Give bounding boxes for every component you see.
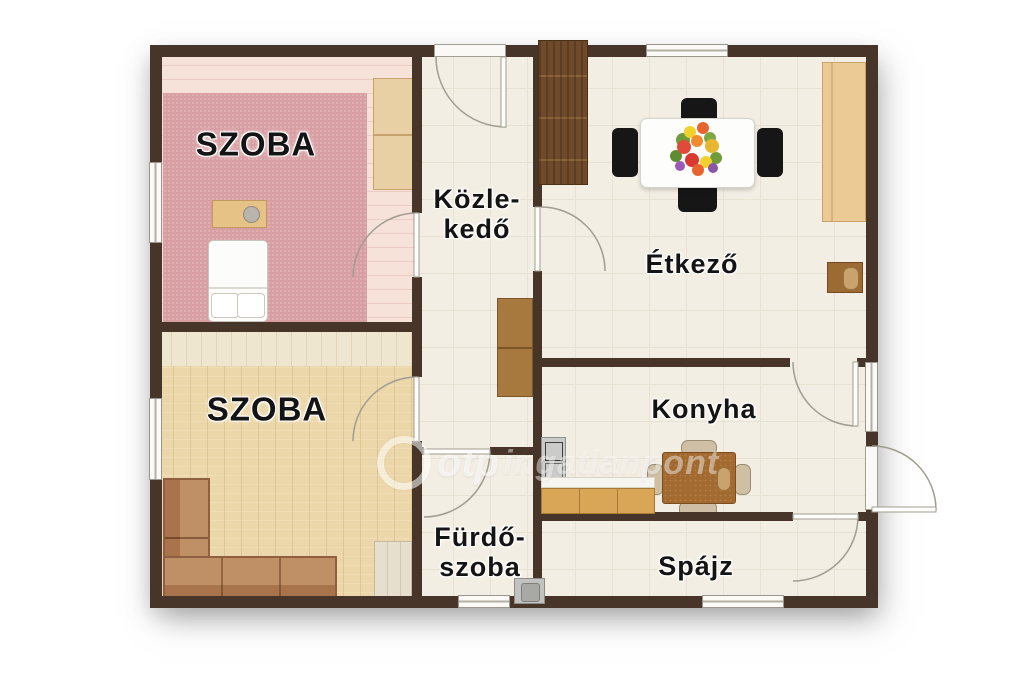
wall-segment <box>866 510 878 608</box>
side-cabinet <box>827 262 863 293</box>
low-wardrobe <box>374 541 412 597</box>
floor-plan: SZOBA SZOBA Közle- kedő Étkező Konyha Fü… <box>0 0 1024 682</box>
tall-cabinet <box>822 62 866 222</box>
wall-segment <box>858 512 866 521</box>
room-label-line: Fürdő- <box>434 522 525 552</box>
window <box>458 595 510 608</box>
wall-segment <box>150 480 162 608</box>
room-label-szoba-top: SZOBA <box>196 127 317 164</box>
window <box>702 595 784 608</box>
wood-floor-strip <box>156 332 418 366</box>
wardrobe <box>373 78 413 190</box>
hall-cabinet <box>497 298 533 397</box>
wall-segment <box>150 322 422 332</box>
room-label-konyha: Konyha <box>651 394 756 424</box>
wall-segment <box>866 432 878 446</box>
wall-segment <box>542 358 790 367</box>
entrance-wardrobe <box>538 40 588 185</box>
otp-logo-icon <box>377 436 431 490</box>
window <box>865 362 878 432</box>
pillow <box>237 293 265 318</box>
window <box>149 162 162 243</box>
wall-segment <box>150 45 434 57</box>
basket <box>843 267 859 290</box>
room-label-line: Közle- <box>434 184 521 214</box>
room-label-etkezo: Étkező <box>645 249 738 279</box>
wall-segment <box>150 45 162 162</box>
kitchen-cabinets <box>541 488 655 514</box>
wall-segment <box>784 596 878 608</box>
watermark-brand: otp <box>437 441 499 486</box>
dining-table <box>640 118 755 188</box>
sink-basin <box>521 583 540 602</box>
watermark: otp ingatlanpont <box>377 436 719 490</box>
room-label-line: szoba <box>434 552 525 582</box>
window <box>149 398 162 480</box>
dining-chair <box>757 128 783 177</box>
wall-segment <box>150 596 458 608</box>
wall-segment <box>866 45 878 362</box>
door-leaf <box>872 507 936 512</box>
exterior-door-frame <box>865 446 878 510</box>
bed <box>208 240 268 322</box>
wall-segment <box>412 57 422 213</box>
kitchen-chair <box>734 464 751 495</box>
door-arc <box>872 446 936 510</box>
wall-segment <box>150 243 162 398</box>
dining-chair <box>612 128 638 177</box>
pillow <box>211 293 239 318</box>
window <box>646 44 728 57</box>
watermark-name: ingatlanpont <box>503 444 719 483</box>
desk <box>212 200 267 228</box>
corner-sofa-horizontal <box>163 556 337 600</box>
desk-lamp <box>243 206 260 223</box>
room-label-szoba-bottom: SZOBA <box>207 392 328 429</box>
room-label-furdoszoba: Fürdő- szoba <box>434 522 525 582</box>
room-label-line: kedő <box>434 214 521 244</box>
room-label-kozlekedo: Közle- kedő <box>434 184 521 244</box>
wall-segment <box>533 271 542 596</box>
room-label-spajz: Spájz <box>658 551 734 581</box>
entrance-door-frame <box>434 44 506 57</box>
